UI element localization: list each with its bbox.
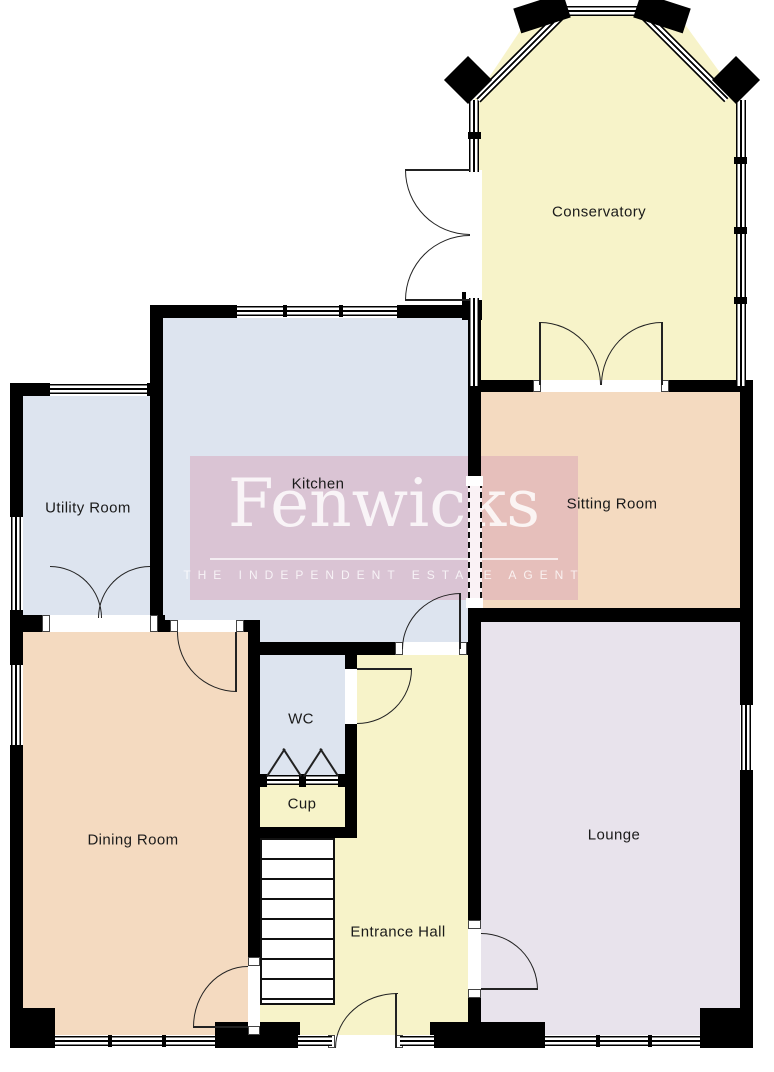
door-leaf — [481, 988, 538, 990]
room-label-kitchen: Kitchen — [292, 476, 345, 493]
conservatory-window — [469, 298, 479, 386]
window — [50, 384, 147, 394]
floor-plan: Fenwicks THE INDEPENDENT ESTATE AGENT — [0, 0, 774, 1072]
front-door-sidelight — [298, 1036, 332, 1046]
door-arc — [405, 235, 470, 300]
conservatory-window — [565, 6, 640, 16]
cupboard-frame-post — [338, 774, 345, 787]
door-jamb — [150, 615, 158, 632]
door-arc — [405, 170, 470, 235]
opening-dining-kitchen — [177, 620, 237, 632]
window-mullion — [339, 305, 343, 317]
window — [545, 1036, 700, 1046]
door-leaf — [357, 668, 412, 670]
door-leaf — [235, 632, 237, 692]
wall-corner — [430, 1022, 545, 1048]
window-mullion — [734, 227, 747, 234]
window-mullion — [468, 132, 481, 139]
front-door-leaf — [395, 993, 397, 1048]
wall-corner — [700, 1008, 753, 1048]
opening-dining-hall — [248, 965, 260, 1027]
opening-hall-lounge — [468, 928, 481, 990]
staircase — [260, 838, 335, 1005]
window-mullion — [108, 1035, 112, 1047]
window-mullion — [734, 157, 747, 164]
room-label-sitting: Sitting Room — [567, 496, 658, 513]
wall — [248, 827, 357, 838]
door-jamb — [236, 620, 244, 632]
room-label-dining: Dining Room — [87, 832, 178, 849]
door-jamb — [468, 989, 481, 998]
door-jamb — [248, 957, 260, 966]
door-leaf — [459, 593, 461, 649]
door-leaf — [405, 169, 470, 171]
window — [237, 306, 397, 316]
room-label-wc: WC — [288, 711, 314, 728]
door-leaf — [193, 1026, 248, 1028]
watermark-divider — [210, 558, 558, 560]
dashed-opening-cap — [466, 476, 483, 486]
room-label-conservatory: Conservatory — [552, 204, 646, 221]
room-label-lounge: Lounge — [588, 827, 640, 844]
door-jamb — [42, 615, 50, 632]
opening-wc-hall — [345, 669, 357, 724]
window-mullion — [648, 1035, 652, 1047]
window-mullion — [734, 297, 747, 304]
room-label-cup: Cup — [288, 796, 317, 813]
front-door-sidelight — [400, 1036, 434, 1046]
window-mullion — [596, 1035, 600, 1047]
agency-tagline: THE INDEPENDENT ESTATE AGENT — [183, 568, 584, 582]
wall-corner — [10, 1008, 55, 1048]
door-jamb — [468, 920, 481, 929]
wall — [468, 608, 753, 622]
door-leaf — [539, 322, 541, 385]
window — [11, 517, 21, 610]
window — [11, 665, 21, 745]
room-label-utility: Utility Room — [45, 500, 131, 517]
door-jamb — [170, 620, 178, 632]
door-leaf — [661, 322, 663, 385]
wall — [150, 305, 163, 628]
door-leaf — [405, 299, 470, 301]
window-mullion — [283, 305, 287, 317]
window — [55, 1036, 215, 1046]
window — [741, 705, 751, 770]
agency-watermark: Fenwicks THE INDEPENDENT ESTATE AGENT — [190, 456, 578, 600]
window-mullion — [162, 1035, 166, 1047]
dashed-opening-kitchen-sitting — [468, 482, 482, 608]
door-jamb — [248, 1026, 260, 1035]
agency-logo-text: Fenwicks — [228, 456, 540, 552]
dashed-opening-cap — [466, 598, 483, 608]
conservatory-window — [736, 100, 746, 386]
room-label-hall: Entrance Hall — [350, 924, 445, 941]
